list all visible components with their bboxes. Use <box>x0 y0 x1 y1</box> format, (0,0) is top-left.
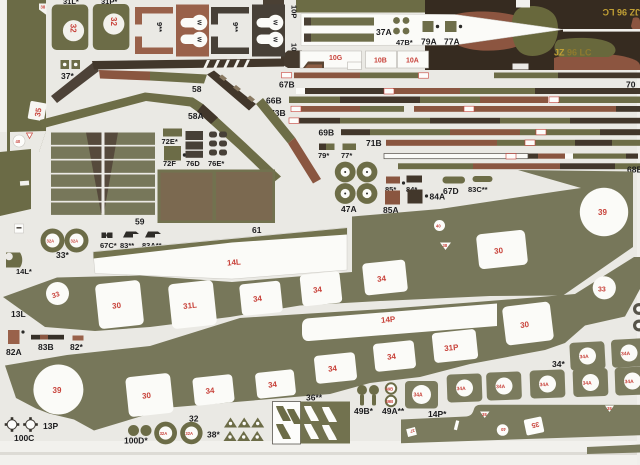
svg-text:34: 34 <box>253 294 263 304</box>
svg-text:14P: 14P <box>381 315 397 325</box>
svg-text:82*: 82* <box>70 342 83 352</box>
svg-text:83B: 83B <box>38 342 54 352</box>
svg-text:49B: 49B <box>386 387 394 392</box>
svg-text:38: 38 <box>607 406 612 411</box>
svg-text:14L*: 14L* <box>16 267 32 276</box>
svg-text:32A: 32A <box>185 431 193 436</box>
svg-text:10B: 10B <box>374 58 387 65</box>
svg-text:79*: 79* <box>318 151 329 160</box>
svg-text:34A: 34A <box>582 380 592 386</box>
svg-text:40: 40 <box>16 139 21 144</box>
svg-text:JZ 96 LC: JZ 96 LC <box>554 48 592 58</box>
svg-text:66B: 66B <box>266 96 282 106</box>
svg-text:30: 30 <box>112 301 122 311</box>
svg-text:67B: 67B <box>279 80 295 90</box>
svg-text:34: 34 <box>387 352 397 362</box>
svg-text:34: 34 <box>377 274 387 284</box>
svg-text:58A: 58A <box>188 111 204 121</box>
svg-text:33*: 33* <box>56 250 69 260</box>
svg-text:10G: 10G <box>329 55 343 62</box>
svg-text:JZ 96 LC: JZ 96 LC <box>602 7 640 17</box>
svg-text:76D: 76D <box>186 159 200 168</box>
svg-text:30: 30 <box>520 320 530 330</box>
svg-text:69B: 69B <box>319 128 335 138</box>
svg-text:39: 39 <box>598 208 607 217</box>
svg-text:77*: 77* <box>341 151 352 160</box>
svg-text:38*: 38* <box>207 430 220 440</box>
svg-text:34A: 34A <box>621 351 631 357</box>
svg-text:14P*: 14P* <box>428 409 447 419</box>
svg-text:79A: 79A <box>421 37 437 47</box>
svg-text:77A: 77A <box>444 37 460 47</box>
svg-text:47A: 47A <box>341 204 357 214</box>
svg-text:100D*: 100D* <box>124 436 148 446</box>
svg-text:36**: 36** <box>306 393 323 403</box>
svg-text:59: 59 <box>135 217 145 227</box>
svg-text:38: 38 <box>443 243 448 248</box>
svg-text:49A**: 49A** <box>382 406 405 416</box>
svg-text:W: W <box>271 20 277 26</box>
svg-text:9**: 9** <box>231 22 240 32</box>
svg-text:32: 32 <box>109 17 118 26</box>
svg-text:67D: 67D <box>443 186 459 196</box>
svg-text:32A: 32A <box>71 239 79 244</box>
svg-text:32A: 32A <box>160 431 168 436</box>
svg-text:34: 34 <box>313 285 323 295</box>
svg-text:34: 34 <box>268 380 278 390</box>
svg-text:31P: 31P <box>444 343 460 354</box>
svg-text:40: 40 <box>500 427 505 432</box>
svg-text:W: W <box>195 37 201 43</box>
svg-text:58: 58 <box>192 84 202 94</box>
svg-text:100C: 100C <box>14 433 34 443</box>
svg-text:38: 38 <box>482 412 487 417</box>
svg-text:34: 34 <box>328 364 338 374</box>
svg-text:34A: 34A <box>624 379 634 385</box>
svg-text:13L: 13L <box>11 309 26 319</box>
svg-text:13P: 13P <box>43 421 58 431</box>
svg-text:70: 70 <box>626 80 636 90</box>
svg-text:76E*: 76E* <box>208 159 224 168</box>
svg-text:32: 32 <box>69 24 78 33</box>
svg-text:61: 61 <box>252 225 262 235</box>
svg-text:37A: 37A <box>376 27 392 37</box>
svg-text:71B: 71B <box>366 138 382 148</box>
svg-text:49B: 49B <box>386 399 394 404</box>
svg-text:30: 30 <box>142 391 152 401</box>
svg-text:34A: 34A <box>496 384 506 390</box>
svg-text:34A: 34A <box>579 354 589 360</box>
svg-text:14L: 14L <box>227 258 242 268</box>
svg-text:40: 40 <box>436 224 441 229</box>
svg-text:34*: 34* <box>552 359 565 369</box>
svg-text:83C**: 83C** <box>468 185 488 194</box>
svg-text:32A: 32A <box>47 239 55 244</box>
svg-text:38: 38 <box>41 5 46 10</box>
svg-text:10A: 10A <box>406 58 419 65</box>
svg-text:34A: 34A <box>456 386 466 392</box>
svg-text:9**: 9** <box>155 22 164 32</box>
svg-text:34: 34 <box>205 386 215 396</box>
svg-text:67C*: 67C* <box>100 241 117 250</box>
svg-text:30: 30 <box>494 246 504 256</box>
svg-text:39: 39 <box>53 386 62 395</box>
svg-text:34A: 34A <box>539 382 549 388</box>
svg-text:W: W <box>271 37 277 43</box>
svg-text:W: W <box>195 20 201 26</box>
svg-text:82A: 82A <box>6 347 22 357</box>
svg-text:10P: 10P <box>290 5 299 18</box>
svg-text:47B*: 47B* <box>396 38 413 47</box>
svg-text:72E*: 72E* <box>162 137 178 146</box>
svg-text:34A: 34A <box>414 393 424 399</box>
svg-text:33: 33 <box>598 287 606 294</box>
svg-text:31L: 31L <box>183 301 198 311</box>
svg-text:72F: 72F <box>163 159 176 168</box>
svg-text:49B*: 49B* <box>354 406 374 416</box>
